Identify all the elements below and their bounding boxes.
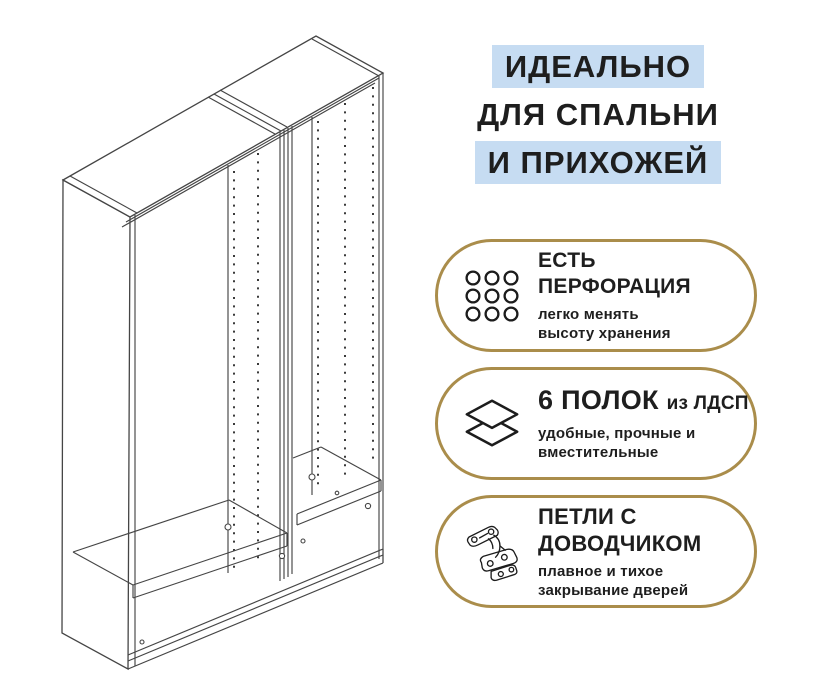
wardrobe-left-side-panel: [62, 180, 135, 669]
feature-subtitle: легко менять: [538, 305, 691, 324]
feature-subtitle: плавное и тихое: [538, 562, 701, 581]
feature-badges: ЕСТЬ ПЕРФОРАЦИЯ легко менять высоту хран…: [435, 239, 757, 623]
feature-heading: ДОВОДЧИКОМ: [538, 530, 701, 557]
feature-heading-main: 6 ПОЛОК: [538, 385, 659, 415]
feature-text: ЕСТЬ ПЕРФОРАЦИЯ легко менять высоту хран…: [538, 248, 691, 343]
headline-line-3: И ПРИХОЖЕЙ: [475, 141, 722, 184]
feature-heading: ЕСТЬ: [538, 248, 691, 274]
feature-heading: 6 ПОЛОК из ЛДСП: [538, 385, 742, 419]
wardrobe-frame-illustration: [35, 25, 415, 695]
wardrobe-left-bay-interior: [228, 153, 258, 573]
headline-row-3: И ПРИХОЖЕЙ: [437, 141, 759, 184]
feature-badge-perforation: ЕСТЬ ПЕРФОРАЦИЯ легко менять высоту хран…: [435, 239, 757, 352]
feature-subtitle: вместительные: [538, 443, 742, 462]
feature-heading: ПЕРФОРАЦИЯ: [538, 274, 691, 300]
wardrobe-middle-divider: [280, 126, 292, 581]
headline-line-2: ДЛЯ СПАЛЬНИ: [473, 93, 723, 136]
feature-heading: ПЕТЛИ С: [538, 503, 701, 530]
wardrobe-bottom-rail: [128, 549, 383, 669]
wardrobe-right-bay-bottom-panel: [293, 447, 381, 543]
perforation-grid-icon: [462, 270, 522, 322]
headline: ИДЕАЛЬНО ДЛЯ СПАЛЬНИ И ПРИХОЖЕЙ: [437, 45, 759, 189]
wardrobe-top-panel: [63, 36, 383, 227]
feature-badge-hinges: ПЕТЛИ С ДОВОДЧИКОМ плавное и тихое закры…: [435, 495, 757, 608]
headline-row-2: ДЛЯ СПАЛЬНИ: [437, 93, 759, 136]
feature-badge-shelves: 6 ПОЛОК из ЛДСП удобные, прочные и вмест…: [435, 367, 757, 480]
wardrobe-right-bay-interior: [312, 73, 383, 563]
feature-subtitle: высоту хранения: [538, 324, 691, 343]
headline-row-1: ИДЕАЛЬНО: [437, 45, 759, 88]
feature-text: ПЕТЛИ С ДОВОДЧИКОМ плавное и тихое закры…: [538, 503, 701, 600]
shelf-layers-icon: [462, 397, 522, 451]
hinge-icon: [462, 512, 522, 592]
feature-subtitle: удобные, прочные и: [538, 424, 742, 443]
product-infographic-page: ИДЕАЛЬНО ДЛЯ СПАЛЬНИ И ПРИХОЖЕЙ ЕС: [0, 0, 816, 700]
feature-subtitle: закрывание дверей: [538, 581, 701, 600]
headline-line-1: ИДЕАЛЬНО: [492, 45, 704, 88]
feature-text: 6 ПОЛОК из ЛДСП удобные, прочные и вмест…: [538, 385, 742, 462]
feature-heading-suffix: из ЛДСП: [667, 393, 749, 414]
